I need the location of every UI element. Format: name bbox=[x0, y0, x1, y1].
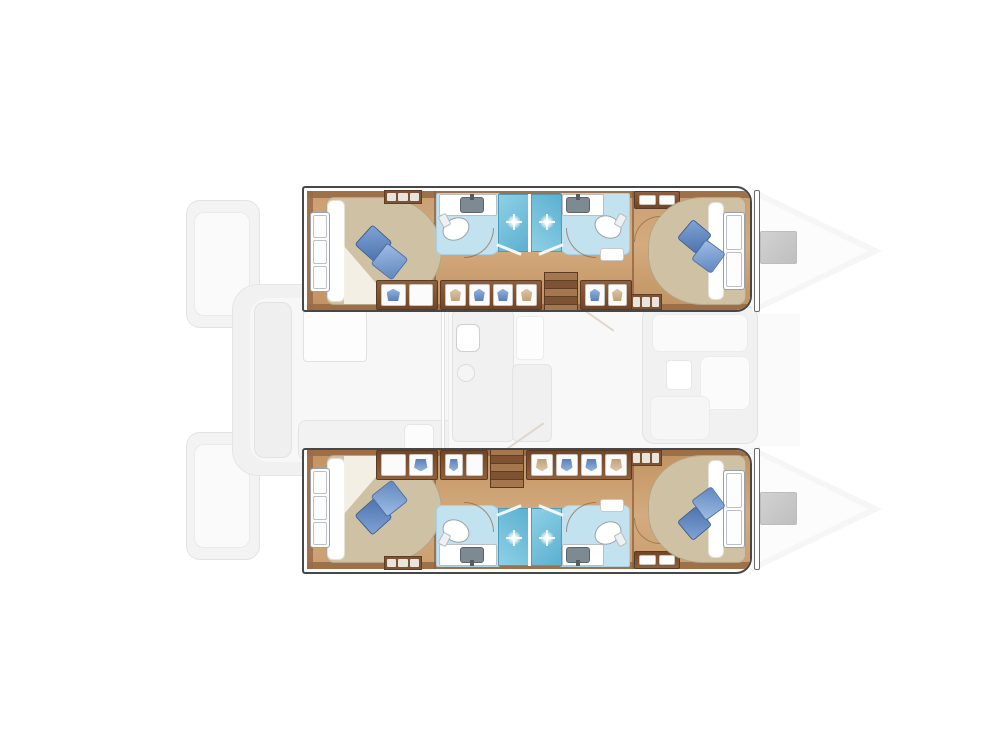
locker-door bbox=[581, 454, 603, 476]
sparkle-ray bbox=[546, 530, 548, 546]
window-pane bbox=[313, 496, 327, 519]
locker-door bbox=[493, 284, 514, 306]
window-pane bbox=[726, 510, 742, 545]
fwd-locker-louver bbox=[630, 450, 662, 466]
shower-head-sparkle-fwd bbox=[539, 530, 555, 546]
shower-head-sparkle-aft bbox=[506, 530, 522, 546]
louver-slat bbox=[633, 453, 640, 463]
stair-step bbox=[545, 281, 577, 289]
starboard-hull bbox=[302, 448, 752, 574]
fwd-berth-window bbox=[723, 212, 745, 290]
wardrobe-b bbox=[440, 280, 542, 310]
bow-step-rail-starboard bbox=[754, 448, 760, 570]
fwd-locker-louver bbox=[630, 294, 662, 310]
cockpit-table bbox=[303, 310, 367, 362]
bow-hatch-port bbox=[760, 231, 797, 264]
locker-door bbox=[659, 555, 676, 565]
stair-step bbox=[545, 273, 577, 281]
stair-step bbox=[491, 479, 523, 487]
louver-slat bbox=[652, 453, 659, 463]
bathroom-cabinet-fwd bbox=[600, 248, 624, 261]
stair-step bbox=[545, 297, 577, 305]
louver-slat bbox=[387, 559, 396, 567]
galley-appliance bbox=[456, 324, 480, 352]
locker-door bbox=[409, 284, 434, 306]
hanging-clothes-icon bbox=[536, 459, 548, 472]
companionway-stairs bbox=[490, 448, 524, 488]
locker-door bbox=[469, 284, 490, 306]
hanging-clothes-icon bbox=[414, 459, 428, 472]
stair-step bbox=[545, 305, 577, 312]
louver-slat bbox=[633, 297, 640, 307]
galley-sink-circle bbox=[457, 364, 475, 382]
stair-step bbox=[491, 463, 523, 471]
louver-slat bbox=[398, 559, 407, 567]
salon-island-top bbox=[516, 316, 544, 360]
sparkle-ray bbox=[546, 214, 548, 230]
bathroom-cabinet-fwd bbox=[600, 499, 624, 512]
shower-head-sparkle-fwd bbox=[539, 214, 555, 230]
louver-slat bbox=[642, 453, 649, 463]
faucet-aft bbox=[470, 560, 474, 566]
locker-door bbox=[639, 555, 656, 565]
locker-door bbox=[608, 284, 628, 306]
louver-slat bbox=[387, 193, 396, 201]
window-pane bbox=[313, 471, 327, 494]
bow-step-rail-port bbox=[754, 190, 760, 312]
window-pane bbox=[726, 215, 742, 250]
cockpit-bench-left bbox=[254, 302, 292, 458]
catamaran-floorplan-canvas bbox=[0, 0, 1007, 755]
louver-slat bbox=[398, 193, 407, 201]
aft-locker-louver bbox=[384, 556, 422, 570]
wardrobe-c bbox=[580, 280, 632, 310]
salon-door-track bbox=[441, 304, 445, 456]
salon-coffee-table bbox=[666, 360, 692, 390]
hanging-clothes-icon bbox=[474, 289, 485, 302]
hanging-clothes-icon bbox=[449, 459, 458, 472]
shower-divider-wall bbox=[528, 508, 531, 566]
window-pane bbox=[313, 215, 327, 238]
aft-berth-window bbox=[310, 468, 330, 548]
companionway-stairs bbox=[544, 272, 578, 312]
hanging-clothes-icon bbox=[387, 289, 401, 302]
hanging-clothes-icon bbox=[610, 459, 622, 472]
sparkle-ray bbox=[513, 530, 515, 546]
wardrobe-a bbox=[376, 280, 438, 310]
stair-step bbox=[491, 448, 523, 455]
louver-slat bbox=[410, 559, 419, 567]
stair-step bbox=[491, 455, 523, 463]
stair-step bbox=[491, 471, 523, 479]
shower-head-sparkle-aft bbox=[506, 214, 522, 230]
window-pane bbox=[313, 522, 327, 545]
locker-door bbox=[381, 284, 406, 306]
locker-door bbox=[445, 454, 463, 476]
louver-slat bbox=[410, 193, 419, 201]
locker-door bbox=[639, 195, 656, 205]
wardrobe-a bbox=[376, 450, 438, 480]
salon-sofa-seat-aft bbox=[650, 396, 710, 440]
hanging-clothes-icon bbox=[590, 289, 601, 302]
port-hull bbox=[302, 186, 752, 312]
hanging-clothes-icon bbox=[612, 289, 623, 302]
faucet-aft bbox=[470, 194, 474, 200]
window-pane bbox=[313, 240, 327, 263]
hanging-clothes-icon bbox=[521, 289, 532, 302]
locker-door bbox=[381, 454, 406, 476]
locker-door bbox=[605, 454, 627, 476]
locker-door bbox=[445, 284, 466, 306]
aft-berth-window bbox=[310, 212, 330, 292]
hanging-clothes-icon bbox=[561, 459, 573, 472]
fwd-berth-window bbox=[723, 470, 745, 548]
stair-step bbox=[545, 289, 577, 297]
foredeck bbox=[754, 314, 800, 446]
wardrobe-b bbox=[440, 450, 488, 480]
window-pane bbox=[726, 473, 742, 508]
faucet-fwd bbox=[576, 194, 580, 200]
locker-door bbox=[556, 454, 578, 476]
aft-locker-louver bbox=[384, 190, 422, 204]
hanging-clothes-icon bbox=[497, 289, 508, 302]
louver-slat bbox=[652, 297, 659, 307]
locker-door bbox=[409, 454, 434, 476]
locker-door bbox=[466, 454, 484, 476]
bulkhead-fwd-cabin bbox=[632, 191, 634, 311]
hanging-clothes-icon bbox=[450, 289, 461, 302]
sparkle-ray bbox=[513, 214, 515, 230]
window-pane bbox=[313, 266, 327, 289]
faucet-fwd bbox=[576, 560, 580, 566]
shower-divider-wall bbox=[528, 194, 531, 252]
locker-door bbox=[585, 284, 605, 306]
locker-door bbox=[516, 284, 537, 306]
locker-door bbox=[659, 195, 676, 205]
bow-hatch-starboard bbox=[760, 492, 797, 525]
window-pane bbox=[726, 252, 742, 287]
wardrobe-c bbox=[526, 450, 632, 480]
salon-sofa-seat-fwd bbox=[652, 314, 748, 352]
hanging-clothes-icon bbox=[585, 459, 597, 472]
louver-slat bbox=[642, 297, 649, 307]
locker-door bbox=[531, 454, 553, 476]
